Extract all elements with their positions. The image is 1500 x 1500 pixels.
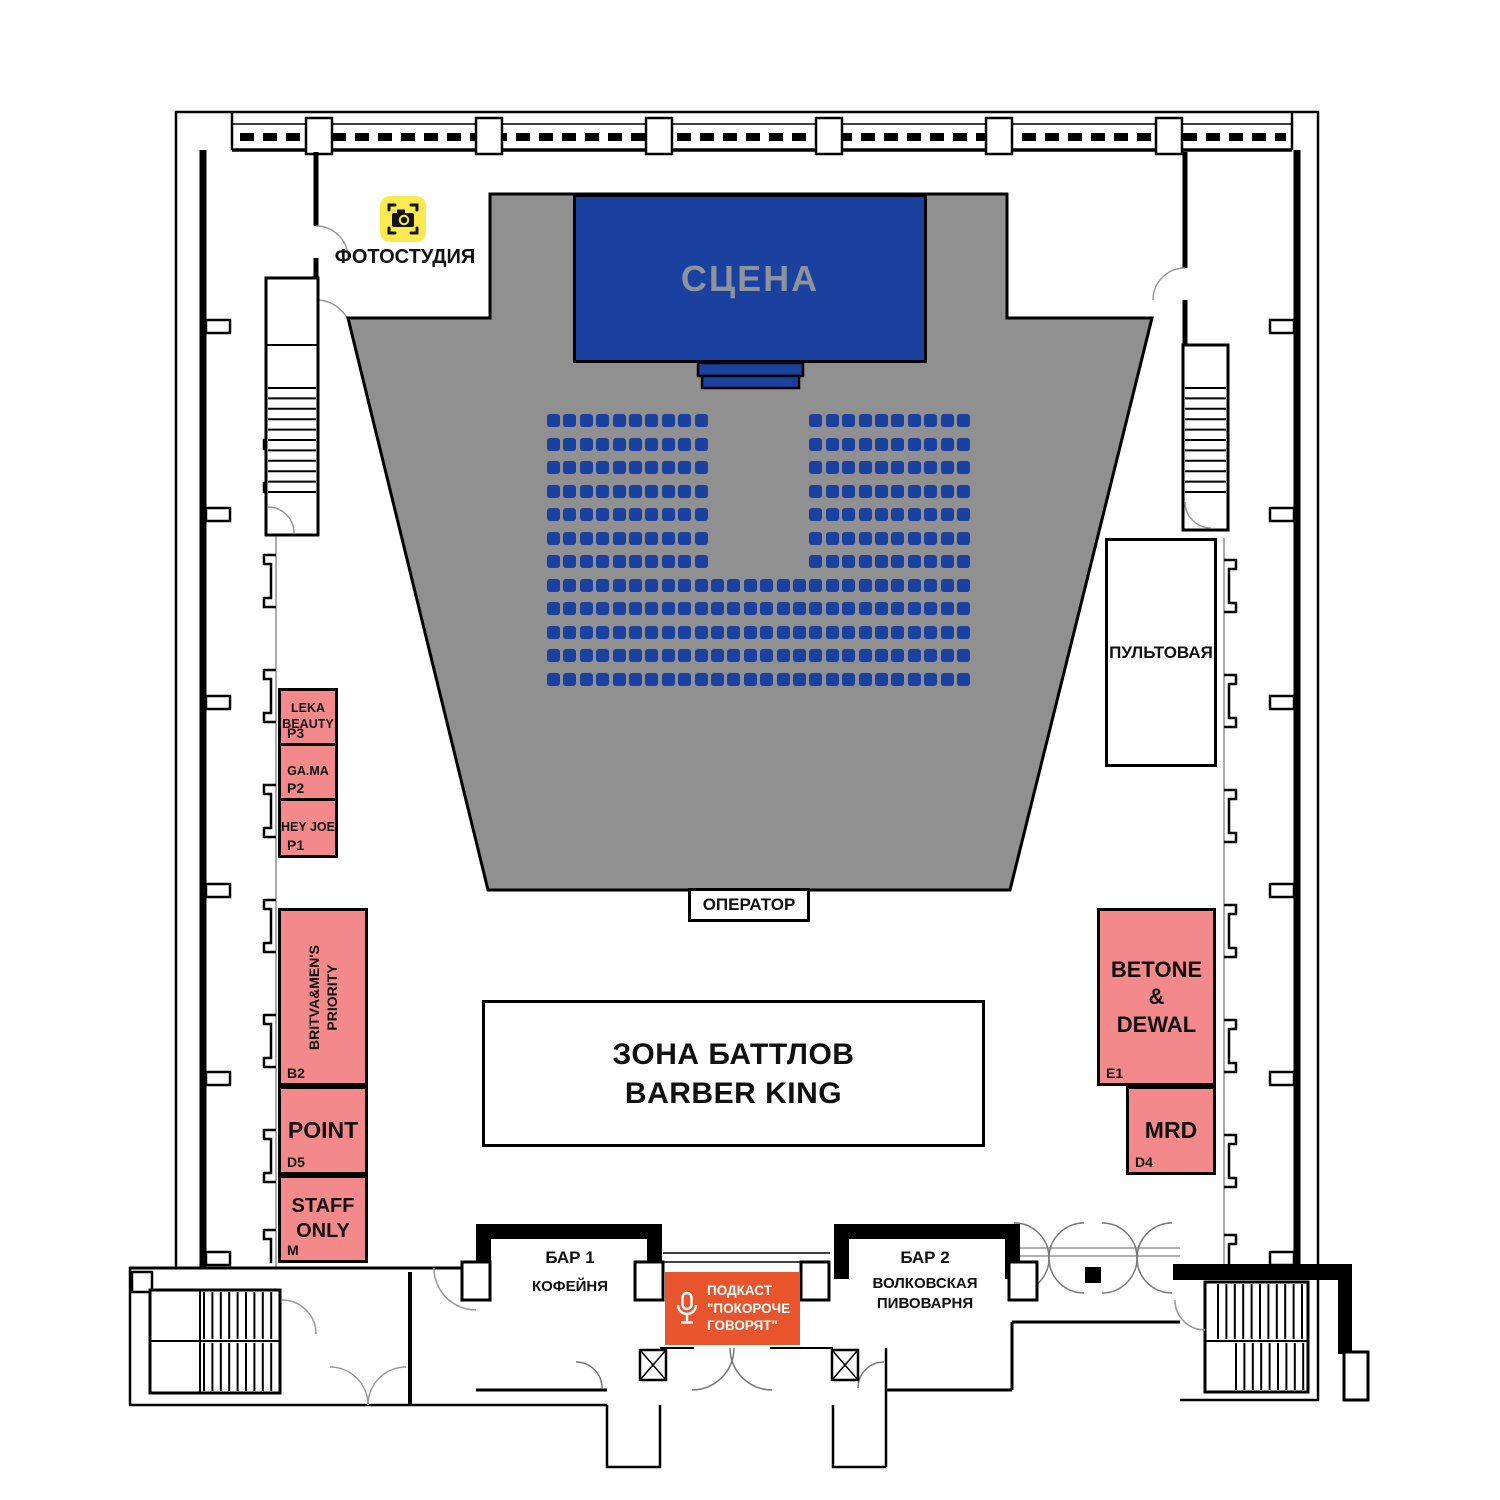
booth-e1: BETONE & DEWAL E1 [1097,908,1216,1086]
seat [875,673,888,686]
camera-icon [380,196,426,242]
seat [563,508,576,521]
seat [859,602,872,615]
seat [727,649,740,662]
seat [547,555,560,568]
seat [924,555,937,568]
seat [859,649,872,662]
seat [744,602,757,615]
seat [957,673,970,686]
seat [662,461,675,474]
seat [629,626,642,639]
seat [957,461,970,474]
seat [547,485,560,498]
seat [596,673,609,686]
bar2-title: БАР 2 [834,1248,1016,1268]
seat [695,602,708,615]
seat [924,602,937,615]
seat [809,508,822,521]
seat [941,555,954,568]
seat [875,555,888,568]
booth-m: STAFF ONLY M [278,1175,368,1263]
left-wall [203,150,230,1268]
seat [596,461,609,474]
seat [695,508,708,521]
seat [908,508,921,521]
booth-code: M [287,1243,299,1258]
seat [662,579,675,592]
seat [941,602,954,615]
seat [596,602,609,615]
stair-bottom-left [130,1268,480,1405]
seat [629,532,642,545]
seat [908,438,921,451]
seat [629,579,642,592]
seat [580,438,593,451]
seat [842,649,855,662]
seat [563,602,576,615]
photo-studio-label: ФОТОСТУДИЯ [330,246,480,269]
seat [580,414,593,427]
seat [826,485,839,498]
seat [809,461,822,474]
seat [875,438,888,451]
seat [645,438,658,451]
booth-d4: MRD D4 [1126,1086,1216,1175]
seat [695,461,708,474]
seat [924,649,937,662]
seat [580,602,593,615]
seat [793,649,806,662]
seat [875,626,888,639]
seat [645,579,658,592]
seat [678,626,691,639]
seat [957,532,970,545]
seat [563,673,576,686]
seat [563,461,576,474]
seat [842,438,855,451]
microphone-icon [675,1291,699,1327]
seat [613,649,626,662]
seat [645,508,658,521]
seat [924,508,937,521]
seat [629,555,642,568]
booth-code: P3 [287,726,304,741]
stair-top-left [266,278,318,535]
seat [580,626,593,639]
seat [924,461,937,474]
seat [695,626,708,639]
seat [924,579,937,592]
seat [547,626,560,639]
seat [727,626,740,639]
booth-code: D5 [287,1155,305,1170]
seat [645,626,658,639]
seat [662,414,675,427]
seat [695,414,708,427]
seat [760,602,773,615]
seat [547,649,560,662]
seat [744,626,757,639]
seat [580,508,593,521]
seat [678,508,691,521]
seat [563,414,576,427]
seat [793,579,806,592]
seat [563,649,576,662]
seat [908,414,921,427]
seat [744,579,757,592]
seat [842,414,855,427]
podcast-label: ПОДКАСТ "ПОКОРОЧЕ ГОВОРЯТ" [707,1282,790,1335]
seat [678,555,691,568]
seat [908,673,921,686]
seat [613,532,626,545]
stage-zone: СЦЕНА [573,194,927,363]
seat [695,579,708,592]
seat [711,602,724,615]
seating-grid [547,414,972,689]
seat [859,579,872,592]
seat [580,485,593,498]
control-room-zone: ПУЛЬТОВАЯ [1105,538,1217,767]
seat [941,485,954,498]
seat [744,649,757,662]
seat [859,461,872,474]
seat [908,485,921,498]
seat [793,626,806,639]
seat [744,673,757,686]
seat [662,626,675,639]
seat [875,579,888,592]
elevator-shaft [640,1350,858,1380]
seat [662,555,675,568]
seat [826,626,839,639]
seat [826,438,839,451]
seat [842,555,855,568]
seat [547,438,560,451]
seat [957,555,970,568]
seat [580,649,593,662]
seat [891,414,904,427]
seat [842,532,855,545]
seat [891,579,904,592]
seat [809,649,822,662]
operator-zone: ОПЕРАТОР [688,888,810,922]
seat [826,414,839,427]
seat [941,438,954,451]
battle-zone-line1: ЗОНА БАТТЛОВ [613,1035,855,1074]
seat [678,649,691,662]
seat [711,579,724,592]
seat [678,485,691,498]
seat [662,673,675,686]
seat [891,485,904,498]
seat [580,555,593,568]
seat [613,508,626,521]
seat [695,532,708,545]
seat [891,673,904,686]
seat [826,508,839,521]
seat [891,649,904,662]
seat [842,461,855,474]
seat [645,649,658,662]
seat [547,579,560,592]
seat [596,555,609,568]
seat [547,532,560,545]
seat [580,579,593,592]
seat [957,649,970,662]
seat [613,602,626,615]
seat [580,673,593,686]
seat [645,602,658,615]
seat [826,649,839,662]
seat [547,602,560,615]
seat [924,414,937,427]
booth-p1: HEY JOE P1 [278,798,338,858]
seat [662,602,675,615]
seat [793,602,806,615]
seat [777,579,790,592]
seat [695,555,708,568]
seat [695,438,708,451]
seat [809,602,822,615]
seat [613,579,626,592]
seat [613,461,626,474]
seat [809,485,822,498]
seat [613,485,626,498]
seat [875,602,888,615]
seat [662,485,675,498]
stage-step [698,363,803,376]
seat [941,579,954,592]
seat [629,485,642,498]
seat [859,626,872,639]
seat [629,673,642,686]
seat [809,414,822,427]
seat [826,461,839,474]
seat [809,673,822,686]
right-wall [1270,150,1297,1268]
seat [875,508,888,521]
seat [809,438,822,451]
seat [859,414,872,427]
seat [678,461,691,474]
booth-code: P1 [287,838,304,853]
seat [908,461,921,474]
seat [826,673,839,686]
seat [613,438,626,451]
seat [613,555,626,568]
seat [645,673,658,686]
seat [941,649,954,662]
seat [924,532,937,545]
seat [711,649,724,662]
seat [777,626,790,639]
seat [695,673,708,686]
seat [859,555,872,568]
seat [662,508,675,521]
seat [826,579,839,592]
seat [842,508,855,521]
seat [613,673,626,686]
seat [563,532,576,545]
seat [711,673,724,686]
seat [727,579,740,592]
seat [957,579,970,592]
seat [695,485,708,498]
seat [645,414,658,427]
booth-code: P2 [287,781,304,796]
seat [891,626,904,639]
seat [859,532,872,545]
seat [842,626,855,639]
booth-p3: LEKA BEAUTY P3 [278,688,338,746]
seat [826,555,839,568]
seat [580,532,593,545]
seat [629,438,642,451]
seat [760,626,773,639]
seat [891,461,904,474]
seat [760,649,773,662]
seat [941,414,954,427]
seat [809,532,822,545]
seat [908,602,921,615]
booth-code: E1 [1106,1066,1123,1081]
seat [678,579,691,592]
right-glazing [1224,538,1236,1268]
seat [924,626,937,639]
seat [957,602,970,615]
seat [941,461,954,474]
seat [875,485,888,498]
seat [760,579,773,592]
seat [875,532,888,545]
seat [777,649,790,662]
bar2-subtitle: ВОЛКОВСКАЯ ПИВОВАРНЯ [834,1274,1016,1313]
seat [596,649,609,662]
seat [629,649,642,662]
stair-top-right [1183,345,1228,530]
seat [924,485,937,498]
seat [908,555,921,568]
seat [875,649,888,662]
seat [957,508,970,521]
seat [875,414,888,427]
seat [629,414,642,427]
seat [908,649,921,662]
seat [695,649,708,662]
seat [859,485,872,498]
seat [842,673,855,686]
seat [596,579,609,592]
interior-top-right-wall [1153,152,1185,345]
seat [563,555,576,568]
seat [957,626,970,639]
seat [842,579,855,592]
booth-p2: GA.MA P2 [278,743,338,801]
seat [908,579,921,592]
podcast-zone: ПОДКАСТ "ПОКОРОЧЕ ГОВОРЯТ" [665,1272,800,1345]
seat [547,673,560,686]
seat [891,532,904,545]
seat [924,438,937,451]
seat [859,673,872,686]
seat [547,414,560,427]
seat [957,485,970,498]
seat [678,414,691,427]
seat [563,626,576,639]
seat [596,438,609,451]
seat [596,532,609,545]
seat [662,438,675,451]
stage-label: СЦЕНА [681,258,819,300]
seat [727,673,740,686]
seat [629,602,642,615]
seat [941,673,954,686]
booth-code: B2 [287,1066,305,1081]
seat [547,461,560,474]
seat [645,485,658,498]
booth-b2: BRITVA&MEN'S PRIORITY B2 [278,908,368,1086]
seat [908,532,921,545]
operator-label: ОПЕРАТОР [703,895,796,915]
battle-zone: ЗОНА БАТТЛОВ BARBER KING [482,1000,985,1147]
seat [760,673,773,686]
seat [596,508,609,521]
seat [711,626,724,639]
seat [809,579,822,592]
seat [563,485,576,498]
seat [957,438,970,451]
bar1-subtitle: КОФЕЙНЯ [480,1278,660,1295]
seat [891,438,904,451]
seat [563,438,576,451]
seat [596,485,609,498]
top-curtain-wall [232,112,1292,154]
seat [727,602,740,615]
seat [662,532,675,545]
seat [941,626,954,639]
seat [596,414,609,427]
seat [678,673,691,686]
seat [645,532,658,545]
seat [809,555,822,568]
stage-step [702,376,799,388]
seat [777,602,790,615]
battle-zone-line2: BARBER KING [613,1074,855,1113]
seat [924,673,937,686]
seat [662,649,675,662]
bar1-title: БАР 1 [480,1248,660,1268]
floor-plan: СЦЕНА ФОТОСТУДИЯ ПУЛЬТОВАЯ ОПЕРАТОР ЗОНА… [0,0,1500,1500]
seat [842,602,855,615]
booth-code: D4 [1135,1155,1153,1170]
seat [891,602,904,615]
seat [678,438,691,451]
seat [547,508,560,521]
seat [809,626,822,639]
seat [908,626,921,639]
seat [826,532,839,545]
seat [678,532,691,545]
seat [613,626,626,639]
seat [859,438,872,451]
seat [629,508,642,521]
seat [793,673,806,686]
seat [777,673,790,686]
seat [875,461,888,474]
seat [613,414,626,427]
